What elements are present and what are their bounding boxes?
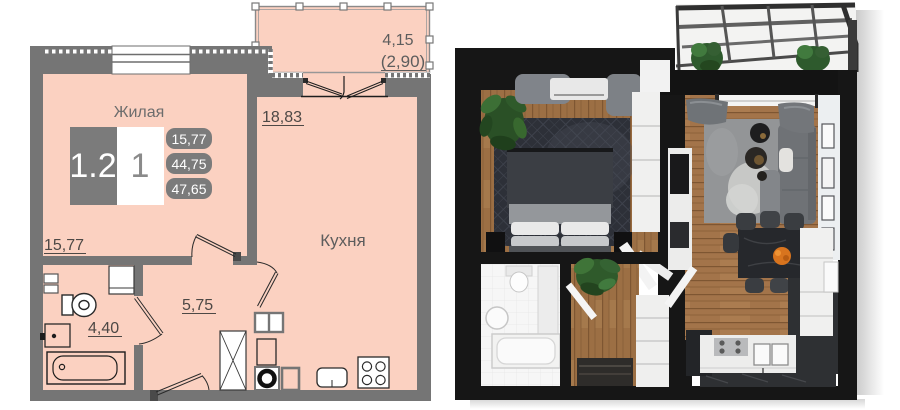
- svg-text:44,75: 44,75: [171, 156, 206, 172]
- svg-text:Кухня: Кухня: [320, 231, 366, 250]
- svg-text:4,40: 4,40: [88, 320, 119, 337]
- svg-text:1.2: 1.2: [69, 147, 116, 185]
- svg-text:15,77: 15,77: [171, 131, 206, 147]
- svg-text:4,15: 4,15: [382, 32, 413, 49]
- svg-text:18,83: 18,83: [262, 109, 302, 126]
- svg-text:1: 1: [131, 147, 150, 185]
- svg-text:47,65: 47,65: [171, 181, 206, 197]
- svg-text:(2,90): (2,90): [381, 52, 425, 71]
- svg-text:Жилая: Жилая: [114, 104, 165, 121]
- svg-text:5,75: 5,75: [182, 297, 213, 314]
- svg-text:15,77: 15,77: [44, 237, 84, 254]
